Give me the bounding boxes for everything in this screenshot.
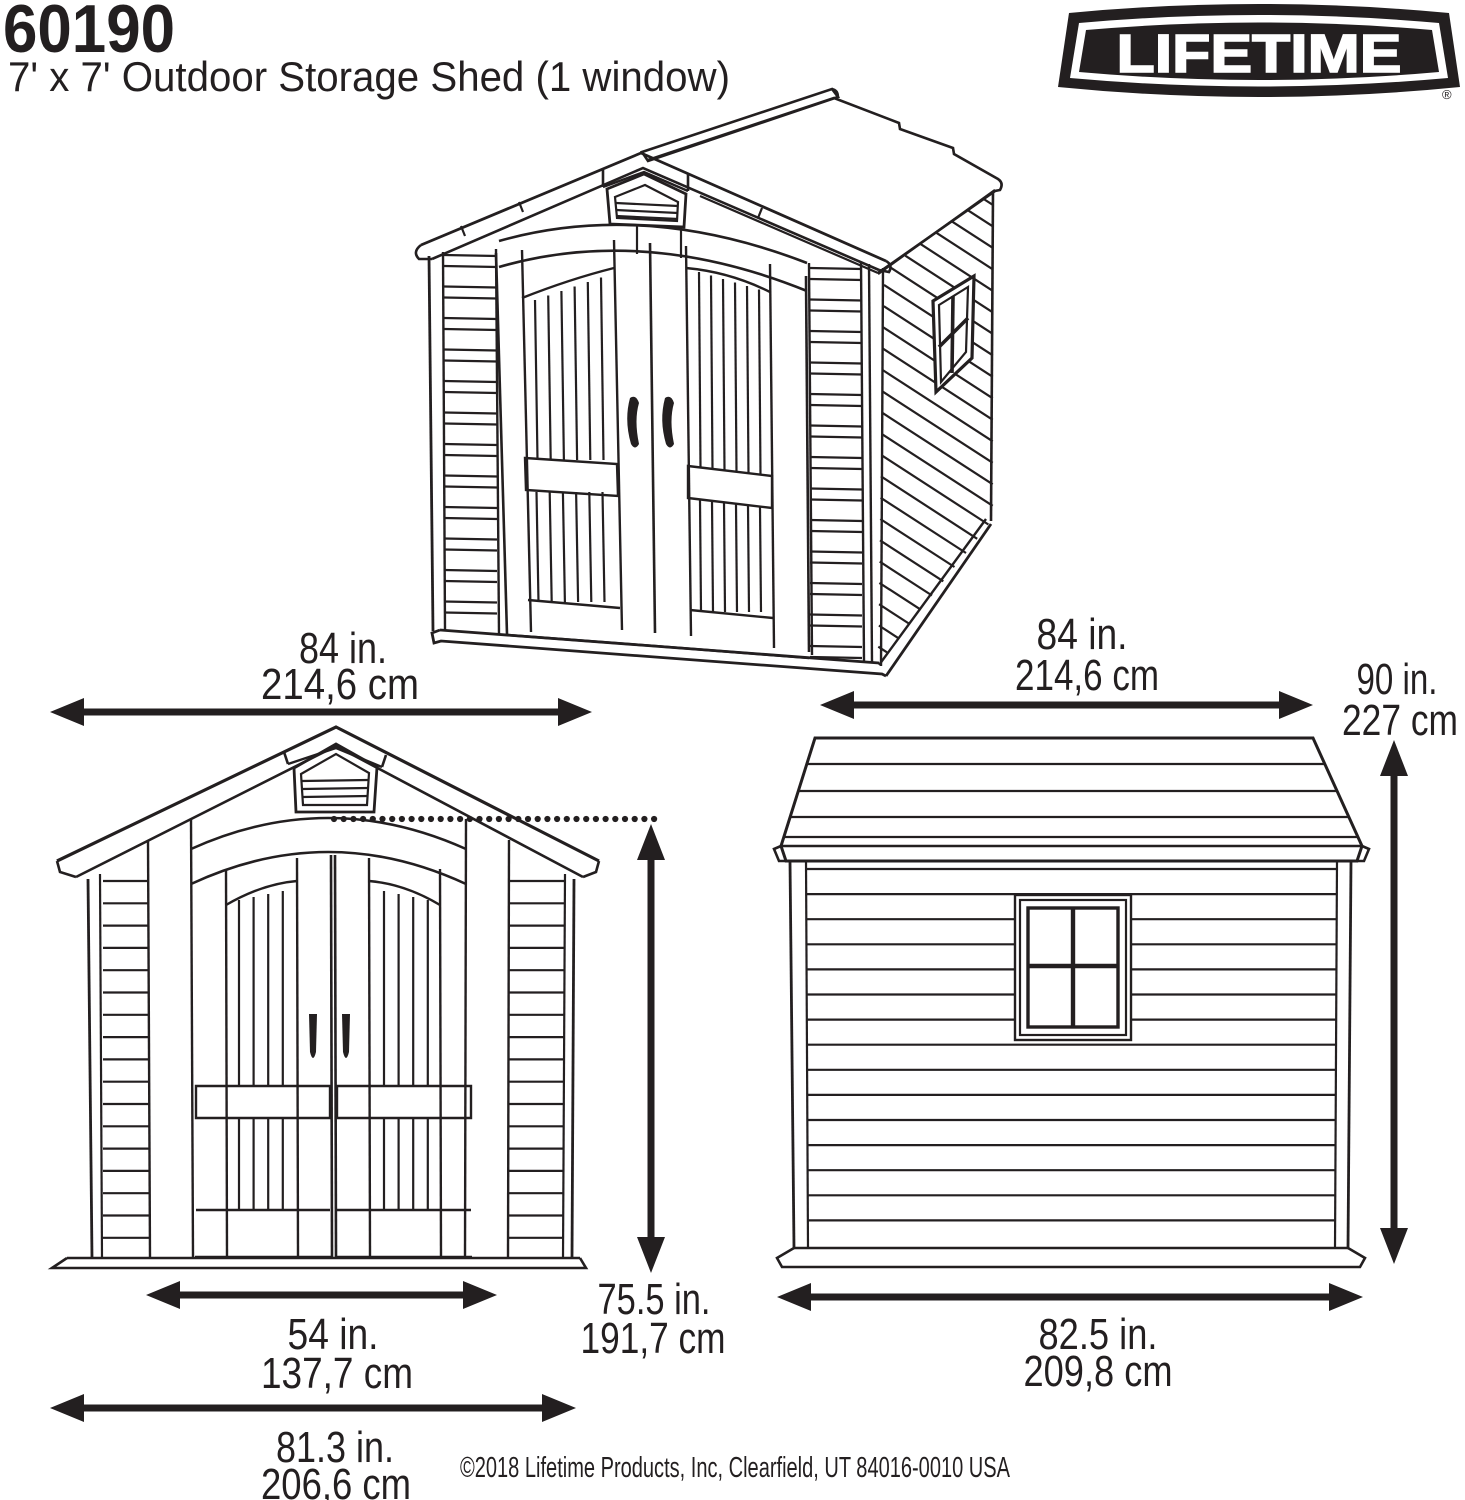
svg-text:©2018 Lifetime Products, Inc,: ©2018 Lifetime Products, Inc, Clearfield… (460, 1452, 1010, 1484)
svg-text:209,8 cm: 209,8 cm (1024, 1347, 1173, 1396)
svg-text:191,7 cm: 191,7 cm (581, 1314, 726, 1363)
svg-text:®: ® (1442, 87, 1452, 102)
svg-text:LIFETIME: LIFETIME (1117, 24, 1402, 84)
svg-text:137,7 cm: 137,7 cm (261, 1349, 413, 1398)
svg-text:206,6 cm: 206,6 cm (261, 1460, 411, 1500)
svg-text:7' x 7' Outdoor Storage Shed (: 7' x 7' Outdoor Storage Shed (1 window) (8, 53, 730, 100)
svg-text:214,6 cm: 214,6 cm (1015, 651, 1159, 700)
svg-text:227 cm: 227 cm (1342, 696, 1458, 745)
svg-text:214,6 cm: 214,6 cm (261, 660, 419, 709)
